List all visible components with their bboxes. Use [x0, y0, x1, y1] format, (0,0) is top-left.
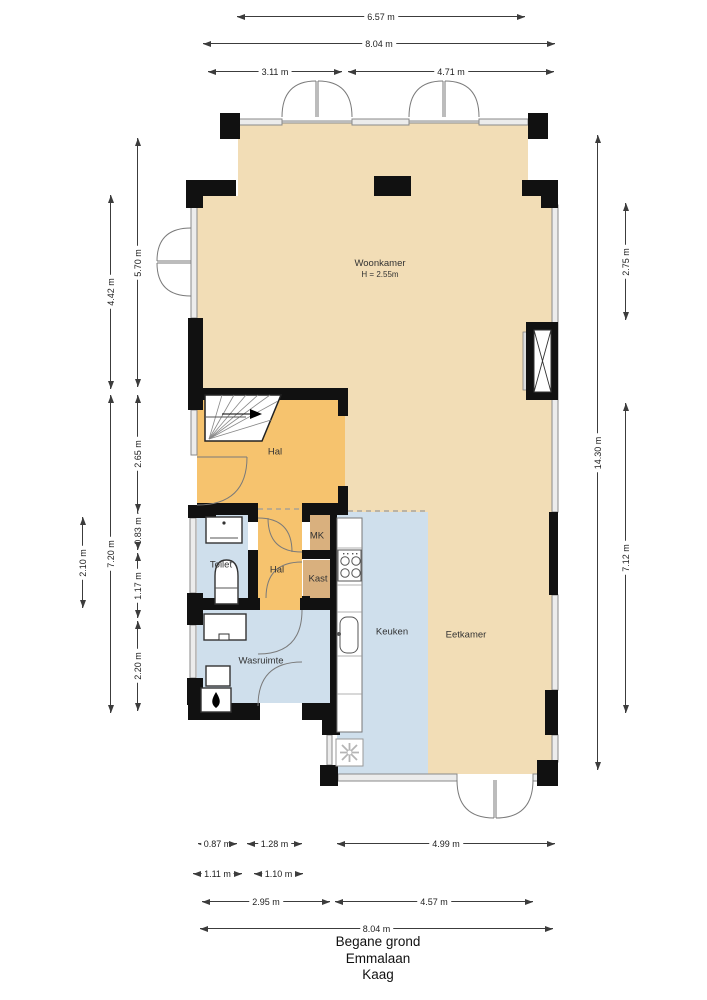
dimension-220m: 2.20 m [137, 621, 138, 711]
dimension-275m: 2.75 m [625, 203, 626, 320]
dimension-1430m: 14.30 m [597, 135, 598, 770]
dimension-311m: 3.11 m [208, 71, 342, 72]
dimension-265m: 2.65 m [137, 395, 138, 512]
dimension-457m: 4.57 m [335, 901, 533, 902]
kitchen-counter [336, 518, 363, 766]
room-label-keuken: Keuken [376, 627, 408, 638]
title-floor: Begane grond [336, 934, 421, 951]
dimension-570m: 5.70 m [137, 138, 138, 387]
dimension-471m: 4.71 m [348, 71, 554, 72]
boiler-icon [201, 666, 231, 712]
room-label-woonkamer: WoonkamerH = 2.55m [354, 258, 405, 280]
washer-icon [204, 614, 246, 640]
dimension-111m: 1.11 m [193, 873, 242, 874]
dimension-083m: 0.83 m [137, 512, 138, 550]
room-label-eetkamer: Eetkamer [446, 630, 487, 641]
dimension-087m: 0.87 m [198, 843, 237, 844]
toilet-sink-icon [206, 517, 242, 543]
room-label-hal: Hal [268, 447, 282, 458]
dimension-442m: 4.42 m [110, 195, 111, 389]
dimension-712m: 7.12 m [625, 403, 626, 713]
room-hal2-fill [258, 505, 302, 605]
chimney-block [374, 176, 411, 196]
room-label-wasruimte: Wasruimte [238, 656, 283, 667]
dimension-657m: 6.57 m [237, 16, 525, 17]
kitchen-sink-icon [337, 617, 358, 653]
title-city: Kaag [336, 967, 421, 984]
room-fills [197, 122, 552, 774]
stove-icon [338, 550, 361, 581]
dimension-110m: 1.10 m [254, 873, 303, 874]
plan-title: Begane grond Emmalaan Kaag [336, 934, 421, 984]
dimension-804m: 8.04 m [200, 928, 553, 929]
dimension-720m: 7.20 m [110, 395, 111, 713]
dimension-804m: 8.04 m [203, 43, 555, 44]
room-label-mk: MK [310, 531, 324, 542]
room-label-toilet: Toilet [210, 560, 232, 571]
dimension-499m: 4.99 m [337, 843, 555, 844]
fireplace-icon [523, 322, 558, 400]
dimension-295m: 2.95 m [202, 901, 330, 902]
room-label-kast: Kast [308, 574, 327, 585]
title-street: Emmalaan [336, 951, 421, 968]
dimension-117m: 1.17 m [137, 553, 138, 618]
vent-unit-icon [336, 739, 363, 766]
room-eetkamer-fill [428, 512, 552, 774]
floorplan-drawing [0, 0, 707, 1000]
floorplan-page: WoonkamerH = 2.55mHalToiletHalMKKastWasr… [0, 0, 707, 1000]
dimension-210m: 2.10 m [82, 517, 83, 608]
room-label-hal-2: Hal [270, 565, 284, 576]
dimension-128m: 1.28 m [247, 843, 302, 844]
